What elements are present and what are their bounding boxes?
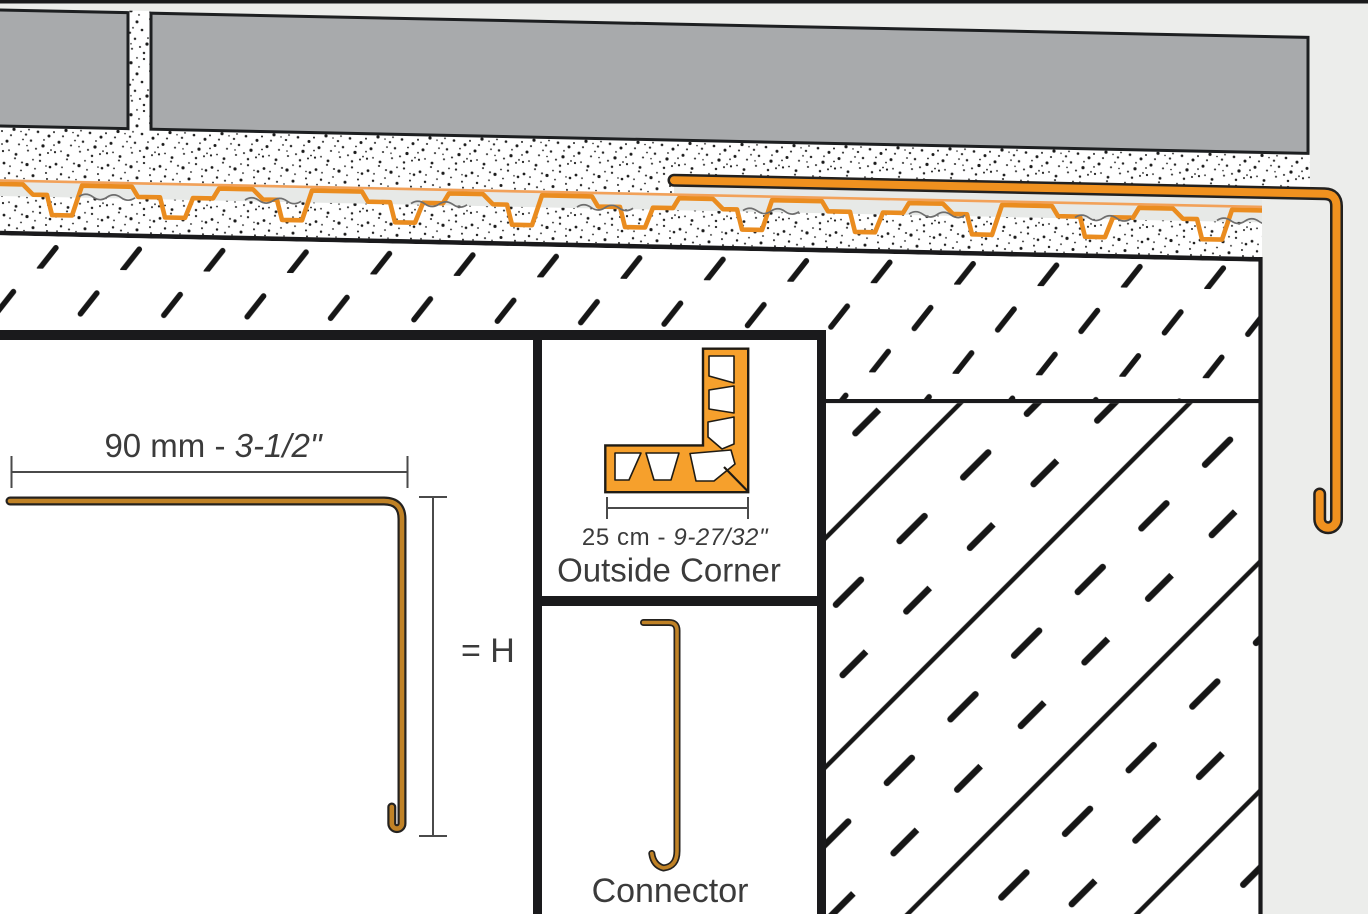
svg-text:25 cm - 9-27/32": 25 cm - 9-27/32"	[582, 524, 769, 551]
svg-text:90 mm - 3-1/2": 90 mm - 3-1/2"	[104, 427, 322, 464]
svg-text:= H: = H	[461, 632, 515, 670]
svg-text:Connector: Connector	[592, 872, 749, 910]
svg-text:Outside Corner: Outside Corner	[557, 552, 781, 589]
